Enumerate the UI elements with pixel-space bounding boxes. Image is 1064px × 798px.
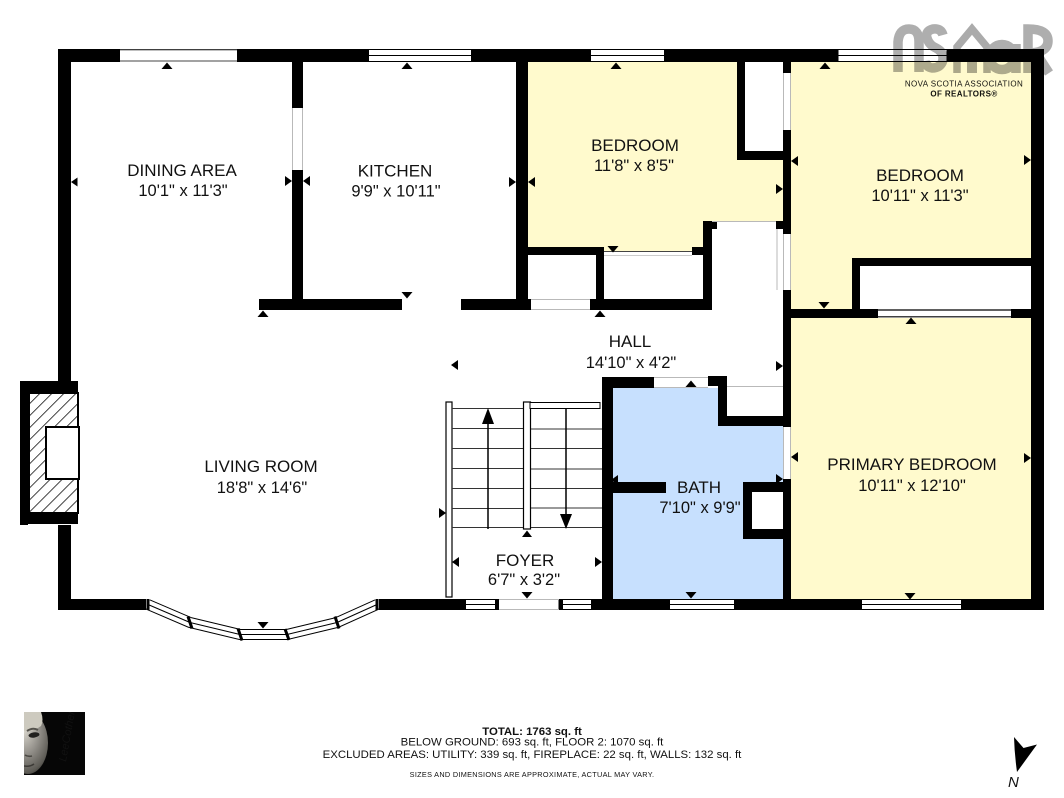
svg-text:BATH: BATH	[677, 478, 721, 497]
svg-text:18'8" x 14'6": 18'8" x 14'6"	[217, 479, 308, 497]
svg-text:10'11" x 12'10": 10'11" x 12'10"	[858, 477, 966, 495]
svg-text:KITCHEN: KITCHEN	[358, 162, 433, 181]
svg-text:EXCLUDED AREAS: UTILITY: 339 s: EXCLUDED AREAS: UTILITY: 339 sq. ft, FIR…	[323, 749, 743, 761]
svg-text:N: N	[1008, 774, 1019, 791]
svg-text:7'10" x 9'9": 7'10" x 9'9"	[659, 499, 740, 517]
svg-text:11'8" x 8'5": 11'8" x 8'5"	[594, 157, 674, 175]
svg-text:14'10" x 4'2": 14'10" x 4'2"	[586, 354, 677, 372]
svg-text:BELOW GROUND: 693 sq. ft, FLOO: BELOW GROUND: 693 sq. ft, FLOOR 2: 1070 …	[401, 737, 665, 749]
svg-text:10'11" x 11'3": 10'11" x 11'3"	[871, 187, 968, 205]
svg-text:PRIMARY BEDROOM: PRIMARY BEDROOM	[827, 455, 996, 474]
svg-text:NOVA SCOTIA ASSOCIATION: NOVA SCOTIA ASSOCIATION	[905, 80, 1023, 89]
svg-text:9'9" x 10'11": 9'9" x 10'11"	[351, 183, 440, 201]
svg-text:BEDROOM: BEDROOM	[876, 166, 964, 185]
svg-text:SIZES AND DIMENSIONS ARE APPRO: SIZES AND DIMENSIONS ARE APPROXIMATE, AC…	[410, 770, 655, 779]
svg-text:6'7" x 3'2": 6'7" x 3'2"	[488, 571, 560, 589]
svg-text:LIVING ROOM: LIVING ROOM	[204, 457, 317, 476]
svg-text:DINING AREA: DINING AREA	[127, 161, 237, 180]
svg-text:OF REALTORS®: OF REALTORS®	[930, 90, 997, 99]
svg-text:FOYER: FOYER	[496, 551, 555, 570]
svg-text:BEDROOM: BEDROOM	[591, 136, 679, 155]
svg-text:10'1" x 11'3": 10'1" x 11'3"	[138, 182, 227, 200]
svg-text:HALL: HALL	[609, 332, 652, 351]
